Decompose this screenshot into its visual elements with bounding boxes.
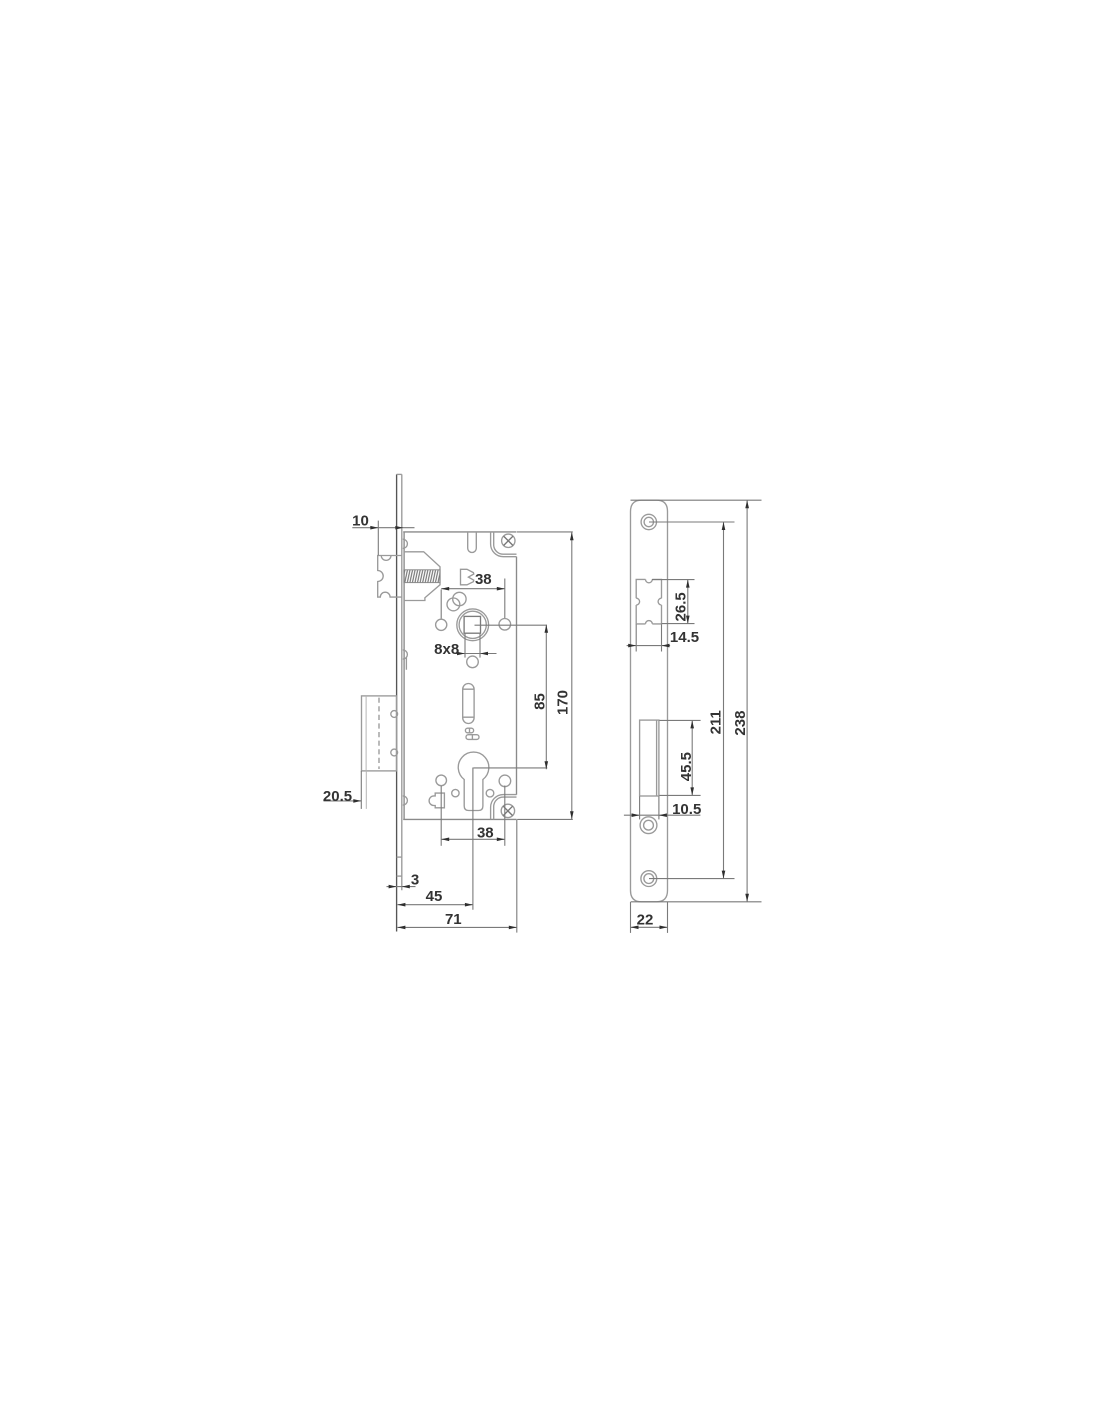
svg-text:38: 38 (477, 824, 494, 841)
svg-text:170: 170 (554, 690, 571, 715)
svg-text:14.5: 14.5 (670, 629, 699, 646)
svg-text:71: 71 (445, 911, 462, 928)
svg-text:22: 22 (637, 911, 654, 928)
svg-text:10: 10 (352, 512, 369, 529)
svg-text:10.5: 10.5 (672, 801, 701, 818)
svg-text:45.5: 45.5 (678, 752, 695, 781)
svg-text:211: 211 (708, 710, 725, 734)
svg-text:38: 38 (475, 571, 492, 588)
svg-text:85: 85 (532, 693, 549, 710)
svg-text:45: 45 (426, 888, 443, 905)
svg-text:8x8: 8x8 (434, 641, 459, 658)
svg-text:20.5: 20.5 (323, 788, 352, 805)
svg-text:26.5: 26.5 (673, 592, 690, 621)
svg-text:3: 3 (411, 871, 419, 888)
svg-text:238: 238 (732, 711, 749, 736)
